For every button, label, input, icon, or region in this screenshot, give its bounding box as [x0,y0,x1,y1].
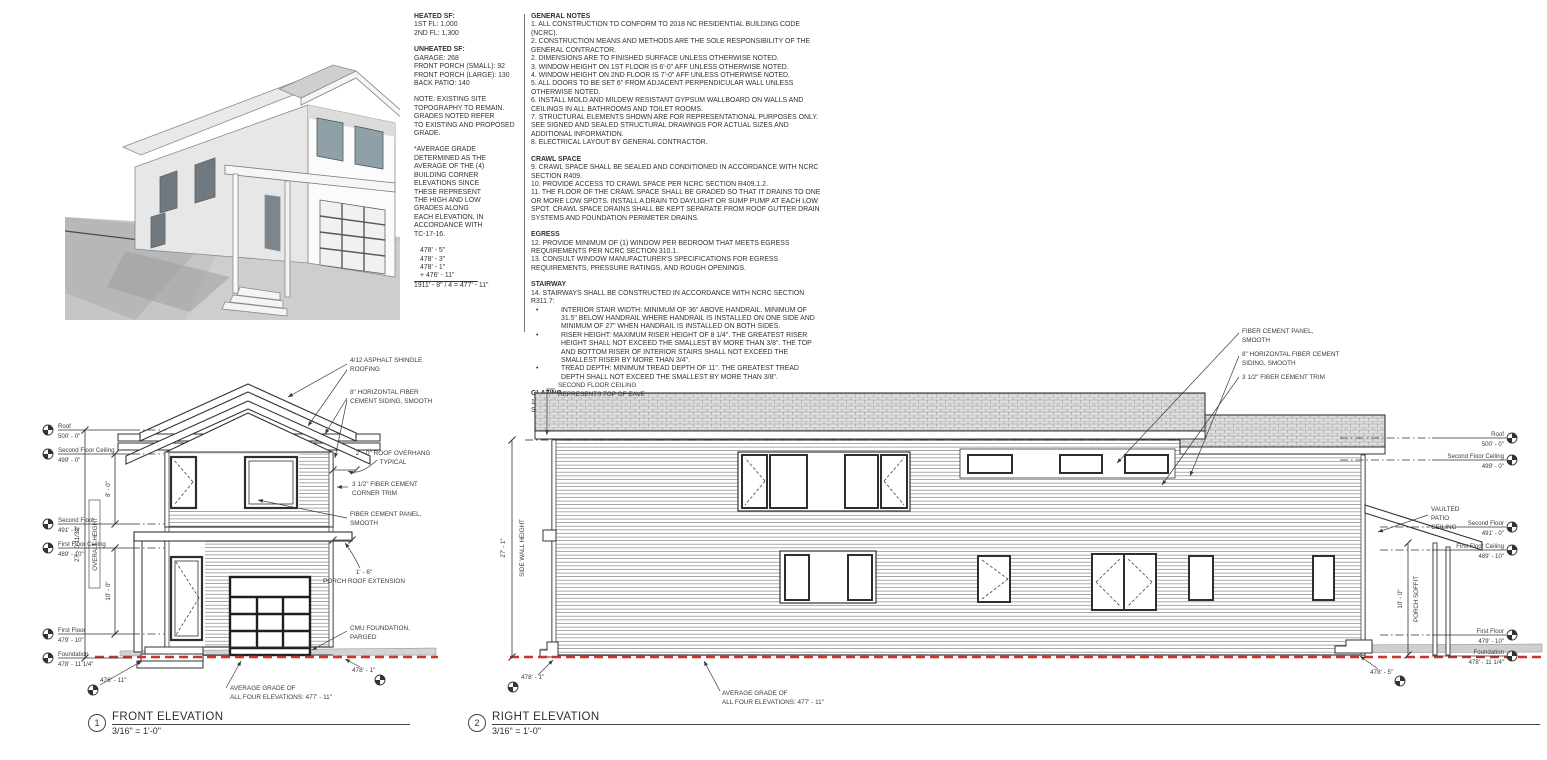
svg-text:Roof: Roof [1491,431,1504,438]
svg-text:AVERAGE GRADE OF: AVERAGE GRADE OF [230,685,296,692]
fixed-window [845,455,878,508]
svg-text:First Floor Ceiling: First Floor Ceiling [1456,543,1504,550]
site-note-line: GRADE. [414,130,526,138]
porch-post [134,541,142,652]
svg-text:1' - 6": 1' - 6" [356,569,372,576]
site-note-line: TOPOGRAPHY TO REMAIN. [414,105,526,113]
svg-text:PORCH SOFFIT: PORCH SOFFIT [1413,576,1420,622]
svg-text:478' - 1": 478' - 1" [352,667,375,674]
avg-grade-note-line: DETERMINED AS THE [414,155,526,163]
svg-text:PATIO: PATIO [1431,515,1449,522]
title-underline [492,724,1540,725]
area-summary: HEATED SF: 1ST FL: 1,000 2ND FL: 1,300 U… [414,13,526,290]
svg-text:Second Floor: Second Floor [1468,520,1504,527]
level-markers: Roof 500' - 0" Second Floor Ceiling 499'… [43,423,166,668]
svg-text:3 1/2" FIBER CEMENT: 3 1/2" FIBER CEMENT [352,481,418,488]
level-markers: Roof 500' - 0" Second Floor Ceiling 499'… [1340,431,1517,666]
svg-text:Foundation: Foundation [1474,649,1505,656]
svg-text:499' - 0": 499' - 0" [58,457,80,464]
svg-text:478' - 11 1/4": 478' - 11 1/4" [1469,659,1504,666]
notes-section-heading: EGRESS [531,231,823,239]
side-wall-height-dimension: 27' - 1" SIDE WALL HEIGHT [500,437,526,661]
avg-grade-note-line: ELEVATIONS SINCE [414,180,526,188]
avg-grade-note-line: GRADES ALONG [414,205,526,213]
second-floor-window-group [738,452,910,511]
level-marker-first-floor: First Floor 479' - 10" [43,627,164,644]
note-item: 5. ALL DOORS TO BE SET 6" FROM ADJACENT … [531,80,823,97]
note-item: 1. ALL CONSTRUCTION TO CONFORM TO 2018 N… [531,21,823,38]
svg-text:4/12 ASPHALT SHINGLE: 4/12 ASPHALT SHINGLE [350,357,422,364]
column-divider [524,14,525,332]
siding-wall [552,440,1365,655]
svg-text:SIDING, SMOOTH: SIDING, SMOOTH [1242,360,1296,367]
corner-trim [329,452,333,647]
heated-sf-line: 2ND FL: 1,300 [414,30,526,38]
note-item: 6. INSTALL MOLD AND MILDEW RESISTANT GYP… [531,97,823,114]
unheated-sf-line: GARAGE: 268 [414,55,526,63]
corner-trim [165,452,169,647]
unheated-sf-line: FRONT PORCH (SMALL): 92 [414,63,526,71]
note-item: 4. WINDOW HEIGHT ON 2ND FLOOR IS 7'-0" A… [531,72,823,80]
heated-sf-heading: HEATED SF: [414,13,526,21]
svg-text:First Floor: First Floor [1477,628,1504,635]
window [1313,556,1334,600]
svg-text:27' - 1": 27' - 1" [500,538,507,557]
perspective-rendering [65,25,400,320]
note-item: 14. STAIRWAYS SHALL BE CONSTRUCTED IN AC… [531,290,823,307]
drawing-number: 1 [94,718,99,728]
utility-box [543,530,556,541]
fixed-window [770,455,807,508]
heated-sf-line: 1ST FL: 1,000 [414,21,526,29]
svg-text:First Floor: First Floor [58,627,85,634]
drawing-number: 2 [474,718,479,728]
svg-text:SIDE WALL HEIGHT: SIDE WALL HEIGHT [519,519,526,577]
drawing-number-badge: 2 [468,714,486,732]
front-elevation-title: 1 FRONT ELEVATION 3/16" = 1'-0" [88,711,410,736]
right-elevation-drawing: 27' - 1" SIDE WALL HEIGHT 10' - 0" PORCH… [480,325,1547,760]
svg-text:8' - 0": 8' - 0" [105,481,112,497]
title-underline [112,724,410,725]
casement-window [978,556,1010,602]
main-roof [535,393,1205,439]
clerestory-window [1060,455,1102,473]
svg-text:CMU FOUNDATION,: CMU FOUNDATION, [350,625,410,632]
note-item: 3. WINDOW HEIGHT ON 1ST FLOOR IS 6'-0" A… [531,64,823,72]
note-item: 2. CONSTRUCTION MEANS AND METHODS ARE TH… [531,38,823,55]
avg-grade-note-line: TC-17-16. [414,231,526,239]
svg-text:TYPICAL: TYPICAL [380,459,407,466]
level-marker-first-floor-ceiling: First Floor Ceiling 489' - 10" [43,541,164,558]
window [1189,556,1213,600]
svg-text:Foundation: Foundation [58,651,89,658]
drawing-sheet: HEATED SF: 1ST FL: 1,000 2ND FL: 1,300 U… [0,0,1547,760]
porch-roof-band [134,532,352,541]
notes-section-heading: STAIRWAY [531,281,823,289]
site-note-line: NOTE: EXISTING SITE [414,96,526,104]
drawing-scale: 3/16" = 1'-0" [112,726,410,736]
svg-text:2' - 0" ROOF OVERHANG: 2' - 0" ROOF OVERHANG [356,450,431,457]
entry-door [171,557,202,640]
grade-addend: 478' - 5" [414,247,478,255]
level-marker-second-floor-ceiling: Second Floor Ceiling 499' - 0" [1340,453,1517,470]
unheated-sf-heading: UNHEATED SF: [414,46,526,54]
patio-roof [1365,505,1482,655]
svg-text:3 1/2" FIBER CEMENT TRIM: 3 1/2" FIBER CEMENT TRIM [1242,374,1325,381]
svg-text:Second Floor Ceiling: Second Floor Ceiling [1447,453,1504,460]
unheated-sf-line: FRONT PORCH (LARGE): 130 [414,72,526,80]
note-item: 9. CRAWL SPACE SHALL BE SEALED AND CONDI… [531,164,823,181]
svg-text:500' - 0": 500' - 0" [58,433,80,440]
front-callout-labels: 4/12 ASPHALT SHINGLE ROOFING 8" HORIZONT… [323,357,433,641]
drawing-number-badge: 1 [88,714,106,732]
garage-door [230,577,310,655]
level-marker-foundation: Foundation 478' - 11 1/4" [43,651,132,668]
note-item: 8. ELECTRICAL LAYOUT BY GENERAL CONTRACT… [531,139,823,147]
svg-text:ROOFING: ROOFING [350,366,380,373]
svg-text:500' - 0": 500' - 0" [1482,441,1504,448]
site-note-line: TO EXISTING AND PROPOSED [414,122,526,130]
svg-text:SECOND FLOOR CEILING: SECOND FLOOR CEILING [558,382,637,389]
note-item: 12. PROVIDE MINIMUM OF (1) WINDOW PER BE… [531,240,823,257]
svg-text:478' - 11 1/4": 478' - 11 1/4" [58,661,93,668]
clerestory-band [960,449,1175,478]
garage-door-3d [320,200,385,274]
porch-post [233,174,238,293]
svg-text:REPRESENTS TOP OF EAVE: REPRESENTS TOP OF EAVE [558,391,645,398]
svg-text:Roof: Roof [58,423,71,430]
svg-text:CORNER TRIM: CORNER TRIM [352,490,397,497]
avg-grade-note-line: *AVERAGE GRADE [414,146,526,154]
casement-window [742,455,767,508]
left-step [540,642,558,657]
drawing-title: FRONT ELEVATION [112,711,410,723]
svg-text:SMOOTH: SMOOTH [1242,337,1270,344]
svg-text:FIBER CEMENT PANEL,: FIBER CEMENT PANEL, [1242,328,1314,335]
svg-text:CEMENT SIDING, SMOOTH: CEMENT SIDING, SMOOTH [350,398,433,405]
svg-text:AVERAGE GRADE OF: AVERAGE GRADE OF [722,690,788,697]
svg-text:SMOOTH: SMOOTH [350,520,378,527]
note-item: 7. STRUCTURAL ELEMENTS SHOWN ARE FOR REP… [531,114,823,139]
svg-text:491' - 0": 491' - 0" [1482,530,1504,537]
svg-text:489' - 10": 489' - 10" [1478,553,1504,560]
svg-text:PORCH ROOF EXTENSION: PORCH ROOF EXTENSION [323,578,405,585]
front-elevation-drawing: Roof 500' - 0" Second Floor Ceiling 499'… [0,350,480,760]
porch-post [285,181,290,297]
drawing-title: RIGHT ELEVATION [492,711,1540,723]
patio-post [1446,547,1450,655]
svg-text:CEILING: CEILING [1431,524,1457,531]
clerestory-window [1125,455,1168,473]
svg-text:PARGED: PARGED [350,634,377,641]
right-elevation-title: 2 RIGHT ELEVATION 3/16" = 1'-0" [468,711,1540,736]
svg-text:478' - 1": 478' - 1" [521,674,544,681]
avg-grade-note-line: THE HIGH AND LOW [414,197,526,205]
note-item: 2. DIMENSIONS ARE TO FINISHED SURFACE UN… [531,55,823,63]
svg-text:ALL FOUR ELEVATIONS: 477' - 11: ALL FOUR ELEVATIONS: 477' - 11" [722,699,824,706]
svg-text:10' - 0": 10' - 0" [1397,589,1404,608]
svg-text:478' - 5": 478' - 5" [1370,669,1393,676]
window [785,555,809,600]
note-item: 13. CONSULT WINDOW MANUFACTURER'S SPECIF… [531,256,823,273]
notes-section-heading: CRAWL SPACE [531,156,823,164]
svg-text:479' - 10": 479' - 10" [58,637,84,644]
floor-height-dimensions: 8' - 0" 10' - 0" [105,451,119,638]
unheated-sf-line: BACK PATIO: 140 [414,80,526,88]
right-grade-labels: 478' - 1" AVERAGE GRADE OF ALL FOUR ELEV… [508,656,1405,706]
grade-addend: 478' - 3" [414,256,478,264]
lower-roof [1180,415,1385,454]
note-item: 10. PROVIDE ACCESS TO CRAWL SPACE PER NC… [531,181,823,189]
svg-text:FIBER CEMENT PANEL,: FIBER CEMENT PANEL, [350,511,422,518]
svg-text:OVERALL HEIGHT: OVERALL HEIGHT [92,517,99,571]
svg-text:8" HORIZONTAL FIBER: 8" HORIZONTAL FIBER [350,389,419,396]
svg-text:479' - 10": 479' - 10" [1478,638,1504,645]
fixed-window [245,457,297,508]
entry-door [265,195,280,251]
drawing-scale: 3/16" = 1'-0" [492,726,1540,736]
avg-grade-note-line: THESE REPRESENT [414,189,526,197]
note-item: 11. THE FLOOR OF THE CRAWL SPACE SHALL B… [531,189,823,223]
avg-grade-note-line: BUILDING CORNER [414,172,526,180]
svg-text:ALL FOUR ELEVATIONS: 477' - 11: ALL FOUR ELEVATIONS: 477' - 11" [230,694,332,701]
site-note-line: GRADES NOTED REFER [414,113,526,121]
svg-text:27' - 0 11/32": 27' - 0 11/32" [74,526,81,562]
svg-text:Second Floor Ceiling: Second Floor Ceiling [58,447,115,454]
svg-text:8" HORIZONTAL FIBER CEMENT: 8" HORIZONTAL FIBER CEMENT [1242,351,1340,358]
avg-grade-note-line: ACCORDANCE WITH [414,222,526,230]
svg-text:499' - 0": 499' - 0" [1482,463,1504,470]
porch-soffit-dimension: 10' - 0" PORCH SOFFIT [1397,540,1420,659]
corner-trim [552,440,556,655]
notes-section-heading: GENERAL NOTES [531,13,823,21]
svg-text:VAULTED: VAULTED [1431,506,1460,513]
front-grade-labels: 476' - 11" 478' - 1" AVERAGE GRADE OF AL… [88,659,385,701]
avg-grade-note-line: AVERAGE OF THE (4) [414,163,526,171]
svg-text:10' - 0": 10' - 0" [105,581,112,600]
grade-addend: 478' - 1" [414,264,478,272]
corner-trim [1361,455,1365,655]
avg-grade-note-line: EACH ELEVATION, IN [414,214,526,222]
patio-post [1433,543,1437,655]
window [848,555,872,600]
grade-average-result: 1911' - 8" / 4 = 477' - 11" [414,282,526,290]
clerestory-window [968,455,1012,473]
grade-addend: + 476' - 11" [414,272,478,281]
